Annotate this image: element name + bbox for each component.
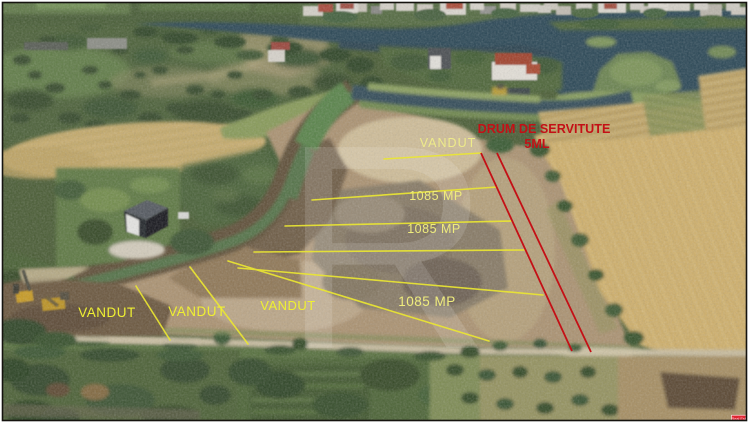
svg-text:DRUM DE SERVITUTE: DRUM DE SERVITUTE <box>478 122 611 136</box>
svg-text:VANDUT: VANDUT <box>260 298 315 313</box>
svg-text:VANDUT: VANDUT <box>168 304 226 319</box>
svg-text:VANDUT: VANDUT <box>78 305 136 320</box>
svg-text:1085 MP: 1085 MP <box>409 189 463 203</box>
svg-text:1085 MP: 1085 MP <box>398 294 456 309</box>
svg-text:1085 MP: 1085 MP <box>407 222 461 236</box>
svg-text:VANDUT: VANDUT <box>420 136 476 150</box>
svg-text:R: R <box>281 84 492 410</box>
svg-text:5ML: 5ML <box>524 137 549 151</box>
